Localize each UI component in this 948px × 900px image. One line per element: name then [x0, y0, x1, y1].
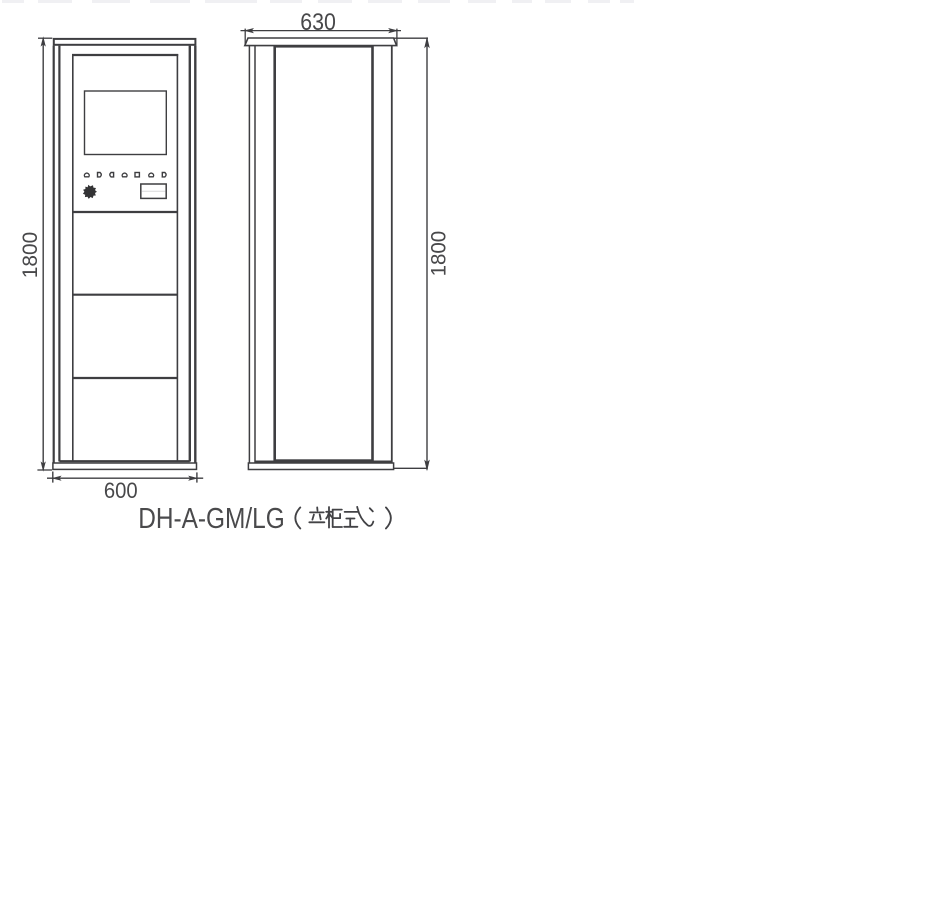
- svg-text:DH-A-GM/LG: DH-A-GM/LG: [138, 503, 285, 535]
- svg-text:1800: 1800: [18, 232, 42, 278]
- svg-text:630: 630: [300, 9, 336, 36]
- svg-text:600: 600: [104, 478, 138, 503]
- svg-text:1800: 1800: [428, 231, 451, 277]
